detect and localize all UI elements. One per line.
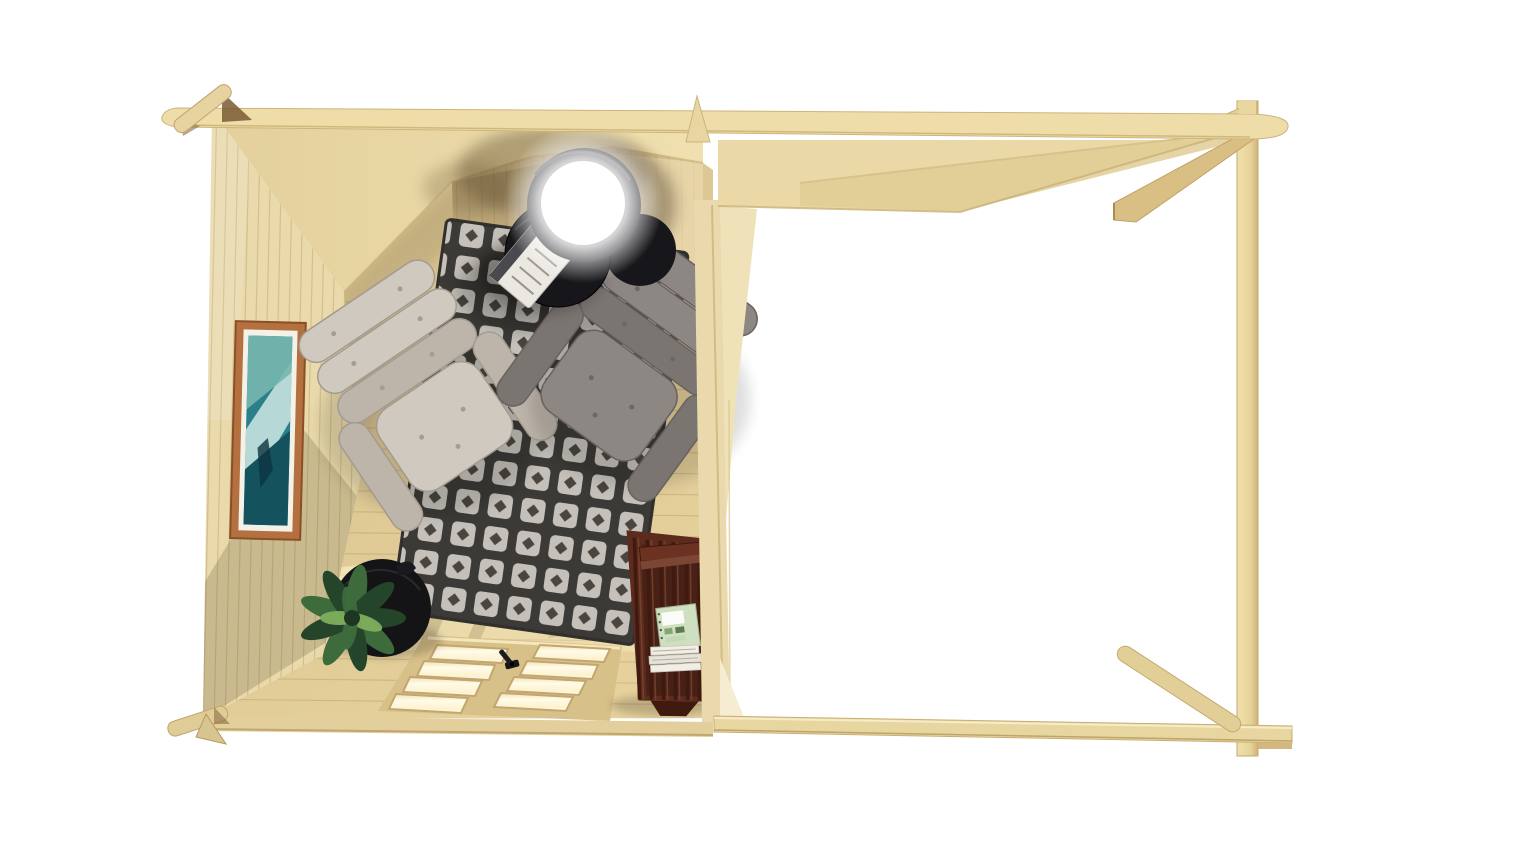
table-lamp <box>503 123 663 283</box>
pergola-post <box>1237 101 1258 756</box>
post-top-cap <box>1239 101 1256 114</box>
render-canvas <box>0 0 1536 864</box>
wall-picture <box>230 321 306 540</box>
book-stack <box>649 645 702 673</box>
cabin-topview-render <box>0 0 1536 864</box>
magazine-green <box>656 604 701 651</box>
